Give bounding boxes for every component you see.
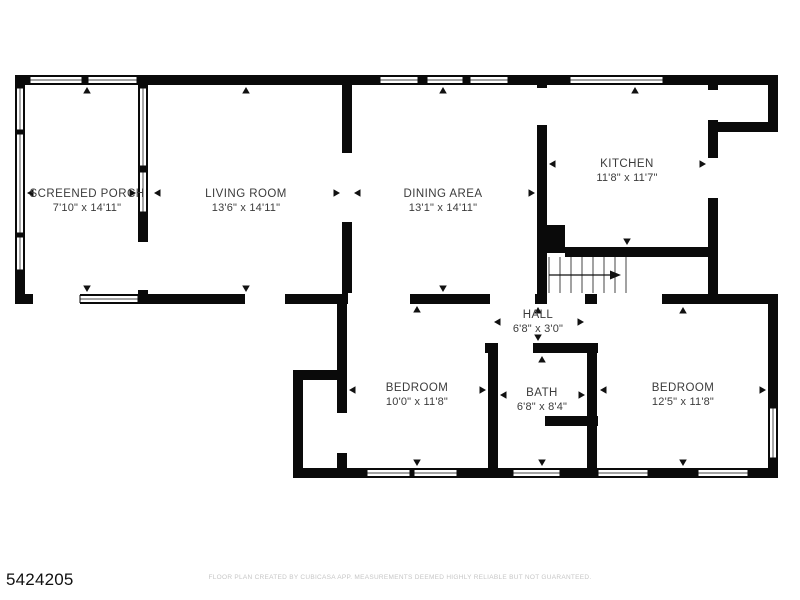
room-name: BEDROOM — [386, 382, 449, 394]
room-dimensions: 12'5" x 11'8" — [652, 396, 715, 408]
disclaimer-text: FLOOR PLAN CREATED BY CUBICASA APP. MEAS… — [0, 574, 800, 581]
room-dimensions: 6'8" x 8'4" — [517, 401, 567, 413]
room-name: DINING AREA — [403, 188, 482, 200]
room-label-bedroom-left: BEDROOM 10'0" x 11'8" — [386, 382, 449, 408]
room-dimensions: 10'0" x 11'8" — [386, 396, 449, 408]
room-name: BEDROOM — [652, 382, 715, 394]
room-name: HALL — [513, 309, 563, 321]
room-dimensions: 6'8" x 3'0" — [513, 323, 563, 335]
room-dimensions: 7'10" x 14'11" — [30, 202, 145, 214]
room-label-dining-area: DINING AREA 13'1" x 14'11" — [403, 188, 482, 214]
floor-plan-drawing — [0, 0, 800, 600]
walls — [15, 75, 778, 478]
room-dimensions: 13'1" x 14'11" — [403, 202, 482, 214]
room-label-hall: HALL 6'8" x 3'0" — [513, 309, 563, 335]
room-label-bedroom-right: BEDROOM 12'5" x 11'8" — [652, 382, 715, 408]
door-openings — [33, 88, 719, 453]
room-label-bath: BATH 6'8" x 8'4" — [517, 387, 567, 413]
room-dimensions: 11'8" x 11'7" — [596, 172, 657, 184]
staircase — [549, 257, 626, 293]
room-name: SCREENED PORCH — [30, 188, 145, 200]
room-name: LIVING ROOM — [205, 188, 287, 200]
windows — [17, 77, 777, 477]
room-label-screened-porch: SCREENED PORCH 7'10" x 14'11" — [30, 188, 145, 214]
room-name: KITCHEN — [596, 158, 657, 170]
room-dimensions: 13'6" x 14'11" — [205, 202, 287, 214]
room-name: BATH — [517, 387, 567, 399]
room-label-kitchen: KITCHEN 11'8" x 11'7" — [596, 158, 657, 184]
room-label-living-room: LIVING ROOM 13'6" x 14'11" — [205, 188, 287, 214]
